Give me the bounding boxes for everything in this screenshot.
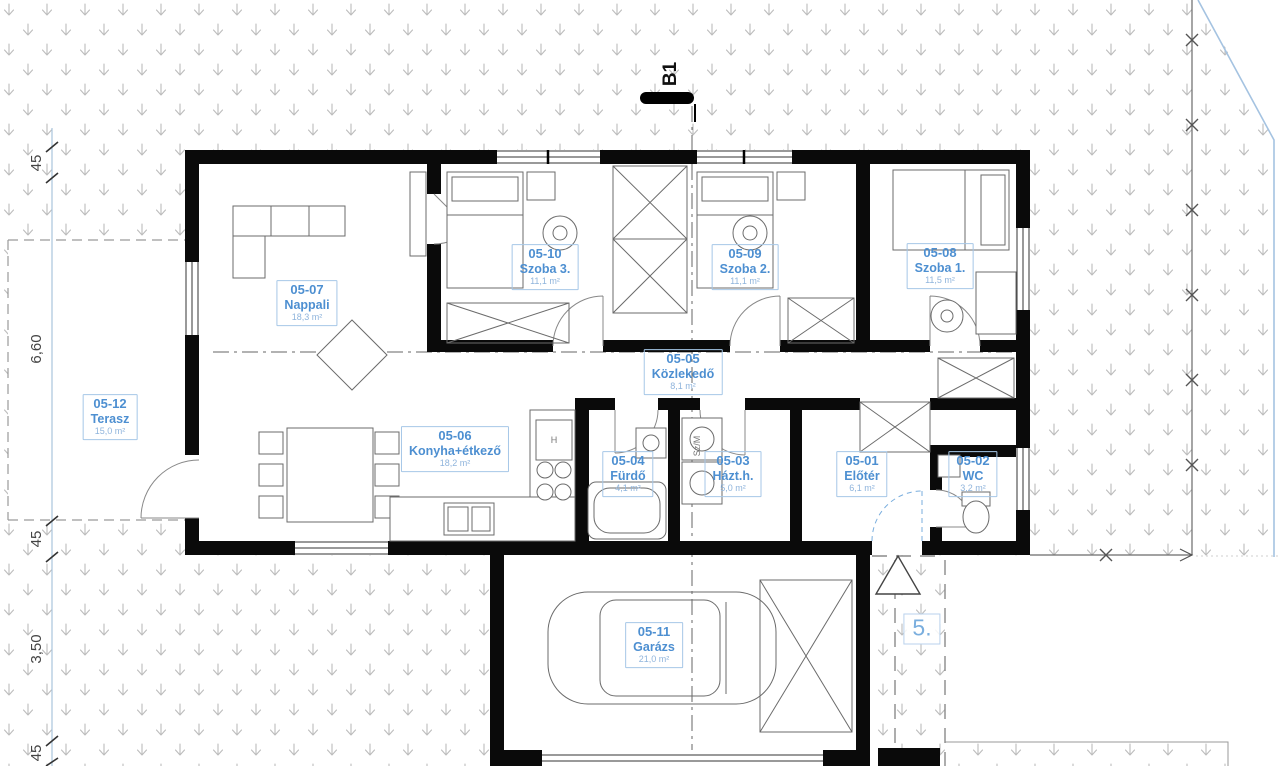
room-area: 21,0 m² [633,654,675,664]
room-id: 05-11 [633,625,675,640]
room-area: 15,0 m² [91,426,130,436]
room-label-nappali[interactable]: 05-07 Nappali 18,3 m² [276,280,337,326]
room-label-konyha-etkezo[interactable]: 05-06 Konyha+étkező 18,2 m² [401,426,509,472]
room-area: 8,1 m² [652,381,715,391]
room-name: Garázs [633,640,675,654]
room-area: 11,1 m² [720,276,771,286]
room-id: 05-09 [720,247,771,262]
room-name: Nappali [284,298,329,312]
room-name: Házt.h. [713,469,754,483]
room-name: Közlekedő [652,367,715,381]
room-area: 18,2 m² [409,458,501,468]
washer-dryer-label: Sz/M [692,436,702,457]
room-id: 05-08 [915,246,966,261]
room-label-hazth[interactable]: 05-03 Házt.h. 5,0 m² [705,451,762,497]
plot-number-label[interactable]: 5. [903,614,940,645]
dim-45-mid: 45 [28,531,45,548]
room-label-eloter[interactable]: 05-01 Előtér 6,1 m² [836,451,887,497]
room-label-szoba2[interactable]: 05-09 Szoba 2. 11,1 m² [712,244,779,290]
room-id: 05-03 [713,454,754,469]
room-area: 3,2 m² [956,483,989,493]
room-id: 05-01 [844,454,879,469]
room-id: 05-12 [91,397,130,412]
room-name: Terasz [91,412,130,426]
dim-660: 6,60 [28,334,45,363]
room-area: 11,1 m² [520,276,571,286]
section-marker-label: B1 [660,61,681,86]
room-label-kozlekedo[interactable]: 05-05 Közlekedő 8,1 m² [644,349,723,395]
room-id: 05-07 [284,283,329,298]
room-name: Konyha+étkező [409,444,501,458]
room-area: 5,0 m² [713,483,754,493]
room-area: 18,3 m² [284,312,329,322]
room-name: Szoba 1. [915,261,966,275]
room-label-garazs[interactable]: 05-11 Garázs 21,0 m² [625,622,683,668]
room-label-terasz[interactable]: 05-12 Terasz 15,0 m² [83,394,138,440]
room-id: 05-06 [409,429,501,444]
room-name: Szoba 2. [720,262,771,276]
room-label-szoba1[interactable]: 05-08 Szoba 1. 11,5 m² [907,243,974,289]
room-label-szoba3[interactable]: 05-10 Szoba 3. 11,1 m² [512,244,579,290]
dim-350: 3,50 [28,634,45,663]
room-id: 05-10 [520,247,571,262]
room-name: Szoba 3. [520,262,571,276]
room-area: 4,1 m² [610,483,645,493]
room-area: 6,1 m² [844,483,879,493]
room-name: Előtér [844,469,879,483]
dim-45-top: 45 [28,155,45,172]
room-area: 11,5 m² [915,275,966,285]
room-name: WC [956,469,989,483]
floor-plan-page: 45 6,60 45 3,50 45 B1 [0,0,1280,766]
fridge-label: H [551,435,558,445]
room-label-wc[interactable]: 05-02 WC 3,2 m² [948,451,997,497]
room-id: 05-04 [610,454,645,469]
room-id: 05-02 [956,454,989,469]
tv-cabinet [410,172,426,256]
room-label-furdo[interactable]: 05-04 Fürdő 4,1 m² [602,451,653,497]
dim-45-bottom: 45 [28,745,45,762]
dining-table-chairs [259,428,399,522]
room-name: Fürdő [610,469,645,483]
room-id: 05-05 [652,352,715,367]
